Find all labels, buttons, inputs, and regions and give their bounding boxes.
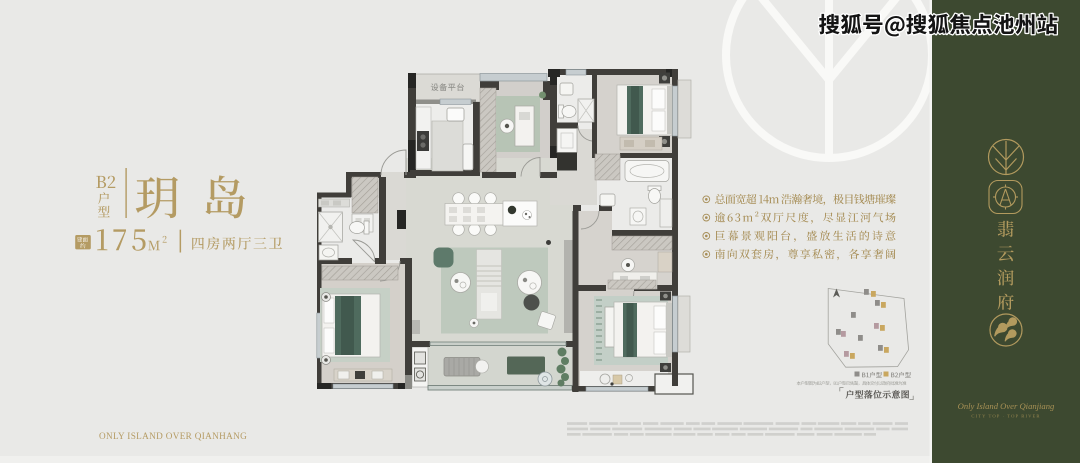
svg-text:ONLY ISLAND OVER QIANHANG: ONLY ISLAND OVER QIANHANG [99, 431, 247, 441]
svg-text:Only Island Over Qianjiang: Only Island Over Qianjiang [958, 401, 1055, 411]
svg-text:CITY TOP · TOP RIVER: CITY TOP · TOP RIVER [971, 414, 1040, 419]
